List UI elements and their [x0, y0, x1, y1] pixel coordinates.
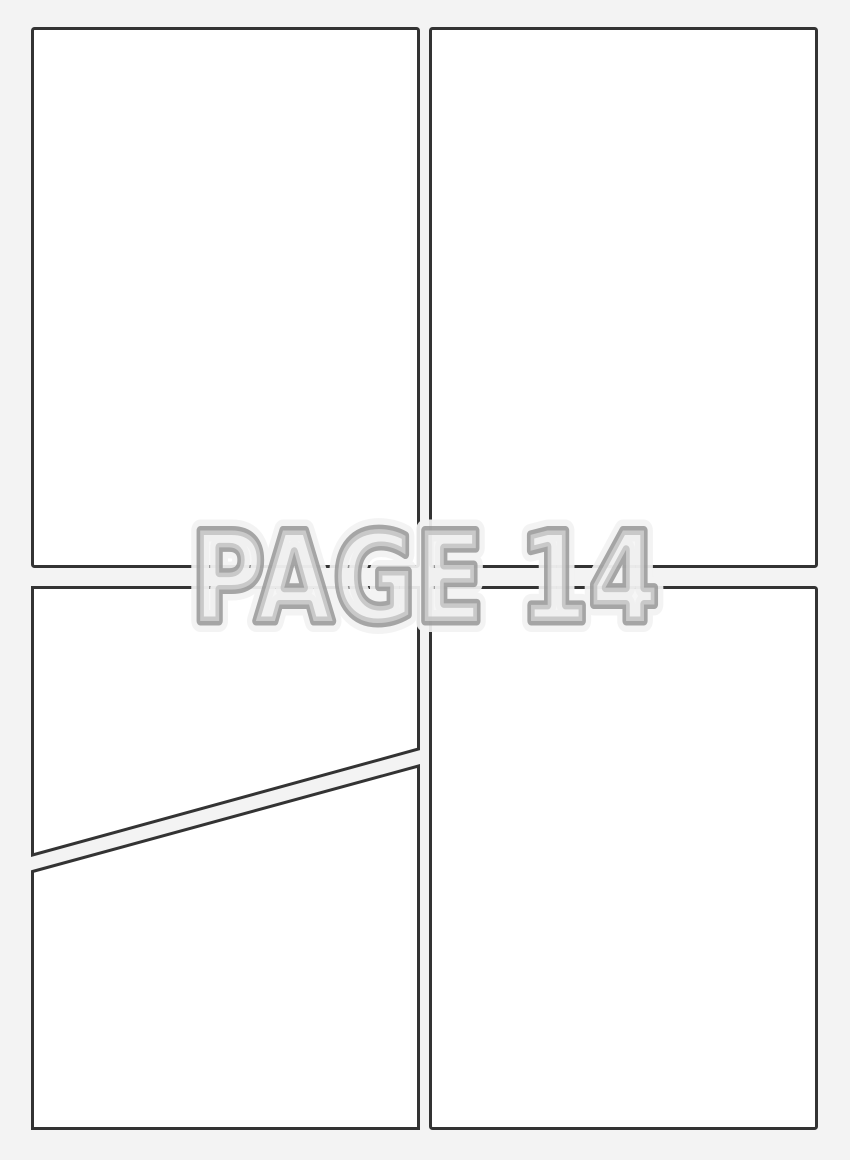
page-canvas: PAGE 14 PAGE 14	[0, 0, 850, 1160]
panel-top-right	[431, 29, 817, 567]
page-watermark: PAGE 14	[191, 507, 659, 651]
panel-bottom-right	[431, 588, 817, 1129]
comic-page-template: PAGE 14 PAGE 14	[0, 0, 850, 1160]
panel-top-left	[33, 29, 419, 567]
